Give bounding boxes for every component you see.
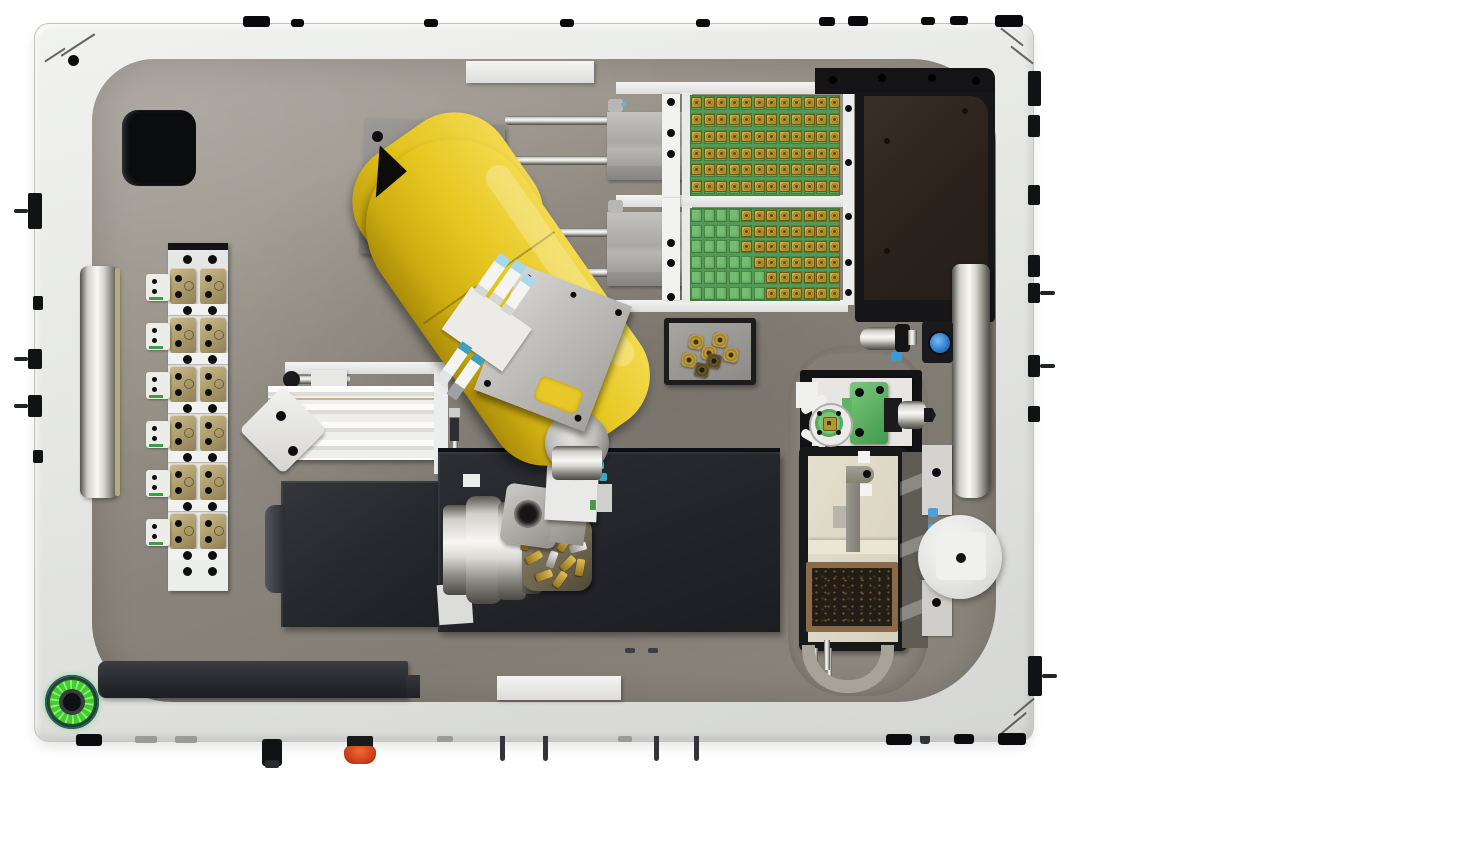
gripper-module <box>200 513 226 549</box>
tray-component-chip <box>816 288 827 299</box>
tray-component-chip <box>804 288 815 299</box>
module-dot <box>205 471 212 478</box>
tray-component-chip <box>716 181 727 192</box>
tray-cell <box>691 256 702 269</box>
tray-component-chip <box>791 226 802 237</box>
tray-component-chip <box>829 241 840 252</box>
feeder-carriage <box>662 94 680 198</box>
gripper-module <box>170 268 196 304</box>
gripper-module <box>200 268 226 304</box>
rack-screw <box>183 255 192 264</box>
module-ring <box>214 281 224 291</box>
gripper-module <box>170 317 196 353</box>
tray-component-chip <box>741 131 752 142</box>
gripper-dock-tab <box>146 323 170 350</box>
tray-component-chip <box>804 131 815 142</box>
loose-parts-tray <box>664 318 756 385</box>
module-dot <box>205 389 212 396</box>
frame-screw <box>424 19 438 27</box>
tray-cell <box>704 240 715 253</box>
tray-component-chip <box>716 114 727 125</box>
gripper-module <box>170 415 196 451</box>
tab-dot <box>152 289 157 294</box>
module-dot <box>205 373 212 380</box>
tray-cell <box>741 287 752 300</box>
tray-component-chip <box>829 288 840 299</box>
estop-button <box>344 746 376 764</box>
frame-screw <box>696 19 710 27</box>
side-port <box>33 296 43 310</box>
cabinet-screw <box>928 74 936 82</box>
tray-component-chip <box>766 181 777 192</box>
tray-component-chip <box>704 131 715 142</box>
tab-dot <box>152 377 157 382</box>
bottom-pin <box>500 736 505 761</box>
tray-component-chip <box>754 257 765 268</box>
module-ring <box>184 330 194 340</box>
tray-component-chip <box>754 164 765 175</box>
module-ring <box>214 330 224 340</box>
side-port <box>1028 71 1041 106</box>
tray-component-chip <box>691 181 702 192</box>
bottom-tab <box>175 736 197 743</box>
dial-center-insert <box>823 417 837 431</box>
carriage-screw <box>667 259 675 267</box>
tray-component-chip <box>741 97 752 108</box>
module-dot <box>175 373 182 380</box>
bottom-tab <box>618 736 632 742</box>
toolchanger-mark <box>590 500 596 510</box>
tray-component-chip <box>779 164 790 175</box>
tray-component-chip <box>816 210 827 221</box>
tray-component-chip <box>816 226 827 237</box>
module-dot <box>175 340 182 347</box>
module-dot <box>205 291 212 298</box>
module-ring <box>184 428 194 438</box>
side-port <box>1028 255 1040 277</box>
component-tray <box>690 208 840 301</box>
carriage-screw <box>667 239 675 247</box>
tray-cell <box>729 256 740 269</box>
deck-riser-bar-bottom <box>497 676 621 700</box>
side-port <box>1028 406 1040 422</box>
gripper-module <box>200 464 226 500</box>
rack-separator <box>168 451 228 462</box>
tray-component-chip <box>791 241 802 252</box>
rack-footer <box>168 560 228 590</box>
tray-component-chip <box>791 272 802 283</box>
tray-cell <box>716 256 727 269</box>
gripper-module <box>170 513 196 549</box>
tray-component-chip <box>766 210 777 221</box>
tray-component-chip <box>816 257 827 268</box>
rail-screw <box>845 213 852 220</box>
tray-component-chip <box>729 114 740 125</box>
spindle-chip <box>463 474 480 487</box>
tray-cell <box>729 209 740 222</box>
tray-component-chip <box>754 181 765 192</box>
side-port-pin <box>1040 364 1055 368</box>
tray-component-chip <box>766 226 777 237</box>
tray-component-chip <box>816 181 827 192</box>
module-dot <box>205 275 212 282</box>
slide-sensor-body <box>450 418 459 441</box>
process-chip <box>858 451 870 463</box>
tray-component-chip <box>691 148 702 159</box>
carriage-screw <box>667 150 675 158</box>
tab-mark <box>149 542 163 545</box>
tray-component-chip <box>766 114 777 125</box>
tray-component-chip <box>754 210 765 221</box>
tray-cell <box>716 209 727 222</box>
frame-screw <box>921 17 935 25</box>
cabinet-screw <box>878 74 886 82</box>
tray-component-chip <box>816 241 827 252</box>
tray-component-chip <box>816 114 827 125</box>
module-ring <box>214 526 224 536</box>
plate-bolt <box>288 446 298 456</box>
tab-dot <box>152 524 157 529</box>
tray-cell <box>704 287 715 300</box>
tray-component-chip <box>779 272 790 283</box>
tray-component-chip <box>779 181 790 192</box>
gripper-module <box>170 366 196 402</box>
feeder-pusher-nub <box>608 200 623 213</box>
bracket-bore <box>514 500 542 528</box>
tool-plate-screw <box>574 414 583 423</box>
tray-cell <box>691 240 702 253</box>
camera-tip <box>908 330 917 345</box>
tray-cell <box>704 271 715 284</box>
side-port <box>1028 355 1040 377</box>
side-plate-bolt <box>932 598 941 607</box>
tray-component-chip <box>829 114 840 125</box>
bumper-bar <box>98 661 408 698</box>
tray-cell <box>716 287 727 300</box>
gripper-module <box>200 366 226 402</box>
tray-component-chip <box>779 257 790 268</box>
brass-nut <box>694 362 711 379</box>
tab-dot <box>152 279 157 284</box>
spindle-segment <box>466 496 502 604</box>
power-ring-hole <box>63 693 81 711</box>
bumper-bar-step <box>406 675 420 698</box>
rack-screw <box>208 567 217 576</box>
module-dot <box>205 324 212 331</box>
module-dot <box>205 438 212 445</box>
side-port-pin <box>1042 674 1057 678</box>
tray-component-chip <box>704 148 715 159</box>
cabinet-panel-screw <box>884 248 890 254</box>
tray-component-chip <box>716 148 727 159</box>
fixture-screw <box>855 388 864 397</box>
feeder-carriage <box>662 198 680 300</box>
side-plate <box>922 445 952 515</box>
feeder-rail-mid <box>616 195 852 207</box>
frame-screw <box>819 17 835 26</box>
feeder-slide-rail <box>505 116 609 125</box>
dial-dot <box>836 430 841 435</box>
tray-component-chip <box>729 164 740 175</box>
carriage-screw <box>667 293 675 301</box>
gripper-dock-tab <box>146 372 170 399</box>
rack-screw <box>183 355 192 364</box>
cabinet-panel-screw <box>884 138 890 144</box>
tray-component-chip <box>816 148 827 159</box>
tray-component-chip <box>816 97 827 108</box>
process-chip <box>860 484 872 496</box>
cabinet-top-band <box>815 68 995 94</box>
tray-cell <box>704 225 715 238</box>
robot-wrist-neck <box>552 446 602 480</box>
dial-dot <box>817 430 822 435</box>
tab-dot <box>152 485 157 490</box>
tray-component-chip <box>766 164 777 175</box>
side-port <box>1028 283 1040 303</box>
toolchanger-side-bracket <box>597 484 612 512</box>
rotary-disk-center <box>956 553 966 563</box>
tray-component-chip <box>791 288 802 299</box>
module-dot <box>175 536 182 543</box>
side-port-pin <box>14 404 28 408</box>
carriage-screw <box>667 98 675 106</box>
tray-cell <box>754 287 765 300</box>
tray-component-chip <box>741 181 752 192</box>
tray-component-chip <box>766 241 777 252</box>
rack-screw <box>208 502 217 511</box>
tray-component-chip <box>791 97 802 108</box>
module-dot <box>175 389 182 396</box>
cabinet-panel-screw <box>962 108 968 114</box>
cabinet-screw <box>972 77 980 85</box>
tray-cell <box>691 271 702 284</box>
tray-component-chip <box>779 226 790 237</box>
machine-foot <box>886 734 912 745</box>
module-dot <box>205 520 212 527</box>
rack-separator <box>168 402 228 413</box>
module-dot <box>175 438 182 445</box>
gripper-dock-tab <box>146 519 170 546</box>
tray-component-chip <box>754 114 765 125</box>
tray-component-chip <box>691 131 702 142</box>
machine-box-left <box>281 481 438 627</box>
module-dot <box>175 324 182 331</box>
tray-component-chip <box>766 257 777 268</box>
tab-dot <box>152 436 157 441</box>
brass-nut <box>723 347 740 364</box>
module-ring <box>184 477 194 487</box>
bottom-pin <box>654 736 659 761</box>
side-port <box>28 395 42 417</box>
module-ring <box>214 477 224 487</box>
tray-component-chip <box>729 148 740 159</box>
rack-screw <box>183 404 192 413</box>
rack-screw <box>183 502 192 511</box>
tray-component-chip <box>804 181 815 192</box>
frame-screw <box>950 16 968 25</box>
tab-mark <box>149 346 163 349</box>
base-plate-bolt <box>372 131 383 142</box>
gripper-module <box>170 464 196 500</box>
tray-component-chip <box>766 148 777 159</box>
module-dot <box>175 471 182 478</box>
module-dot <box>205 422 212 429</box>
tray-cell <box>741 271 752 284</box>
tray-cell <box>729 240 740 253</box>
rack-screw <box>183 551 192 560</box>
dial-dot <box>817 411 822 416</box>
tray-component-chip <box>791 181 802 192</box>
rack-separator <box>168 500 228 511</box>
rack-screw <box>183 567 192 576</box>
frame-screw <box>68 55 79 66</box>
tray-component-chip <box>791 257 802 268</box>
tray-component-chip <box>716 131 727 142</box>
tray-component-chip <box>829 210 840 221</box>
guide-cylinder-left <box>80 266 118 498</box>
tray-component-chip <box>704 181 715 192</box>
tray-cell <box>754 271 765 284</box>
feeder-right-rail <box>843 93 854 305</box>
bottom-pin <box>543 736 548 761</box>
process-arm-vertical <box>846 474 860 552</box>
render-viewport <box>0 0 1476 866</box>
rack-separator <box>168 353 228 364</box>
tab-dot <box>152 475 157 480</box>
tray-component-chip <box>779 210 790 221</box>
side-port <box>28 349 42 369</box>
slide-sensor <box>449 408 460 417</box>
rail-screw <box>845 159 852 166</box>
tab-mark <box>149 444 163 447</box>
tab-dot <box>152 338 157 343</box>
tray-component-chip <box>829 131 840 142</box>
gripper-dock-tab <box>146 421 170 448</box>
tray-component-chip <box>741 148 752 159</box>
machine-box-left-cylinder <box>265 505 285 593</box>
module-ring <box>214 379 224 389</box>
tray-cell <box>716 225 727 238</box>
tray-component-chip <box>766 288 777 299</box>
tray-component-chip <box>741 164 752 175</box>
deck-mark <box>648 648 658 653</box>
tray-component-chip <box>766 131 777 142</box>
tray-component-chip <box>704 164 715 175</box>
tool-plate-screw <box>614 308 623 317</box>
module-ring <box>184 379 194 389</box>
rack-top-strip <box>168 243 228 250</box>
tray-component-chip <box>729 181 740 192</box>
fixture-screw <box>876 386 884 394</box>
feeder-pusher-fitting <box>621 102 626 107</box>
handle-pin <box>824 640 830 670</box>
tray-component-chip <box>691 97 702 108</box>
module-dot <box>205 340 212 347</box>
component-tray <box>690 95 840 196</box>
tray-component-chip <box>829 164 840 175</box>
tray-component-chip <box>791 148 802 159</box>
process-arm-bolt <box>863 470 871 478</box>
feeder-rail-bottom <box>616 300 848 312</box>
camera-lens <box>928 331 952 355</box>
tray-component-chip <box>829 226 840 237</box>
module-dot <box>175 520 182 527</box>
tool-plate-screw <box>570 291 578 299</box>
tray-component-chip <box>779 148 790 159</box>
tray-component-chip <box>791 210 802 221</box>
rail-screw <box>845 289 852 296</box>
tray-component-chip <box>829 257 840 268</box>
cabinet-screw <box>829 76 837 84</box>
tray-component-chip <box>779 114 790 125</box>
tray-component-chip <box>804 114 815 125</box>
bottom-pin <box>694 736 699 761</box>
tray-cell <box>691 287 702 300</box>
rack-separator <box>168 304 228 315</box>
tray-component-chip <box>716 97 727 108</box>
side-port-pin <box>14 357 28 361</box>
gripper-module <box>200 317 226 353</box>
module-dot <box>175 487 182 494</box>
tray-component-chip <box>691 114 702 125</box>
module-ring <box>214 428 224 438</box>
tray-cell <box>729 271 740 284</box>
frame-screw <box>291 19 304 27</box>
frame-screw <box>848 16 868 26</box>
tray-component-chip <box>779 131 790 142</box>
side-port <box>1028 185 1040 205</box>
process-block <box>833 506 846 528</box>
machine-foot <box>998 733 1026 745</box>
tray-cell <box>704 256 715 269</box>
tray-component-chip <box>804 148 815 159</box>
fixture-motor-cylinder <box>898 401 926 429</box>
tray-cell <box>704 209 715 222</box>
tray-cell <box>729 287 740 300</box>
tray-component-chip <box>829 181 840 192</box>
module-dot <box>175 275 182 282</box>
tray-cell <box>716 271 727 284</box>
tray-component-chip <box>804 257 815 268</box>
module-dot <box>205 487 212 494</box>
tray-component-chip <box>804 241 815 252</box>
tray-component-chip <box>729 131 740 142</box>
tray-component-chip <box>754 97 765 108</box>
rail-screw <box>845 105 852 112</box>
tool-plate-screw <box>483 379 492 388</box>
tray-component-chip <box>791 131 802 142</box>
carriage-screw <box>667 129 675 137</box>
bottom-tab <box>135 736 157 743</box>
tray-component-chip <box>754 241 765 252</box>
tray-cell <box>729 225 740 238</box>
side-port <box>1028 115 1040 137</box>
tab-dot <box>152 426 157 431</box>
tray-component-chip <box>729 97 740 108</box>
machine-foot <box>954 734 974 744</box>
tray-component-chip <box>804 272 815 283</box>
module-dot <box>205 536 212 543</box>
tray-component-chip <box>816 272 827 283</box>
tray-cell <box>716 240 727 253</box>
plate-bolt <box>276 411 286 421</box>
tray-component-chip <box>754 226 765 237</box>
tray-component-chip <box>816 164 827 175</box>
tray-component-chip <box>741 226 752 237</box>
rack-screw <box>208 453 217 462</box>
tray-component-chip <box>829 272 840 283</box>
rack-screw <box>183 453 192 462</box>
